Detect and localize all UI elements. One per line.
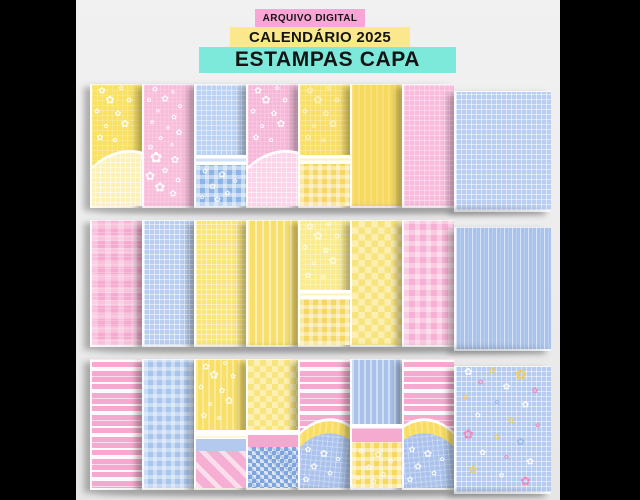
swatch-yellow-flowers-band-gingham: ✿✿✿✿✿✿✿✿✿✿ [298,220,350,347]
swatch-yellow-soft-stripes [350,84,402,208]
flower-layer: ✿✿✿✿✿✿✿ [352,360,402,488]
arc-shape [246,153,298,208]
left-black-bar [0,0,76,500]
swatch-blue-flower-field: ✿✿✿✿✿✿✿✿✿✿✿✿✿✿✿✿✿✿✿✿✿ [454,366,551,494]
swatch-pink-fine-grid [402,84,454,208]
right-black-bar [560,0,640,500]
swatch-pink-flowers-arc: ✿✿✿✿✿✿✿✿✿✿ [246,84,298,208]
swatch-blue-fine-grid [142,220,194,347]
badge-calendario-2025-label: CALENDÁRIO 2025 [249,29,391,46]
swatch-pink-flowers: ✿✿✿✿✿✿✿✿✿✿✿✿✿✿✿✿✿✿✿✿ [142,84,194,208]
swatch-yellow-squares [350,220,402,347]
swatch-blue-band-flower-gingham: ✿✿✿✿✿✿✿ [194,84,246,208]
swatch-blue-gingham [142,359,194,490]
flower-layer: ✿✿✿✿✿✿✿✿✿✿ [196,360,246,488]
flower-layer: ✿✿✿✿✿✿✿ [196,85,246,206]
badge-arquivo-digital-label: ARQUIVO DIGITAL [263,13,358,24]
flower-layer: ✿✿✿✿✿✿✿✿✿✿ [300,221,350,345]
swatch-pink-plaid [90,220,142,347]
swatch-pink-stripes-wave-blue: ✿✿✿✿✿✿ [298,359,350,490]
swatch-blue-stripes-pink-yellow: ✿✿✿✿✿✿✿ [350,359,402,490]
swatch-pink-stripes-wave-blue-2: ✿✿✿✿✿✿ [402,359,454,490]
badge-calendario-2025: CALENDÁRIO 2025 [230,27,410,47]
badge-arquivo-digital: ARQUIVO DIGITAL [255,9,365,27]
pattern-row-1: ✿✿✿✿✿✿✿✿✿✿✿✿✿✿✿✿✿✿✿✿✿✿✿✿✿✿✿✿✿✿✿✿✿✿✿✿✿✿✿✿… [90,84,551,208]
flower-layer: ✿✿✿✿✿✿✿✿✿✿✿✿✿✿✿✿✿✿✿✿ [144,85,194,206]
photo-area: ARQUIVO DIGITAL CALENDÁRIO 2025 ESTAMPAS… [76,0,560,500]
swatch-blue-pinstripes [454,227,551,351]
swatch-yellow-vstripes [246,220,298,347]
swatch-yellow-band-gingham: ✿✿✿✿✿✿✿✿✿✿ [298,84,350,208]
badge-estampas-capa: ESTAMPAS CAPA [199,47,456,73]
pattern-row-3: ✿✿✿✿✿✿✿✿✿✿✿✿✿✿✿✿✿✿✿✿✿✿✿✿✿✿✿✿✿✿✿✿✿✿✿✿✿✿✿✿… [90,359,551,490]
swatch-blue-fine-grid [454,91,551,212]
swatch-pink-gingham [402,220,454,347]
arc-shape [90,153,142,208]
badge-estampas-capa-label: ESTAMPAS CAPA [235,48,420,72]
swatch-pink-hstripes [90,359,142,490]
swatch-yellow-checker-houndstooth [246,359,298,490]
pattern-row-2: ✿✿✿✿✿✿✿✿✿✿ [90,220,551,347]
swatch-yellow-fine-grid [194,220,246,347]
flower-layer: ✿✿✿✿✿✿✿✿✿✿ [300,85,350,206]
swatch-yellow-flowers-arc: ✿✿✿✿✿✿✿✿✿✿ [90,84,142,208]
swatch-yellow-stripe-flowers-diag: ✿✿✿✿✿✿✿✿✿✿ [194,359,246,490]
flower-layer: ✿✿✿✿✿✿✿✿✿✿✿✿✿✿✿✿✿✿✿✿✿ [456,367,551,492]
